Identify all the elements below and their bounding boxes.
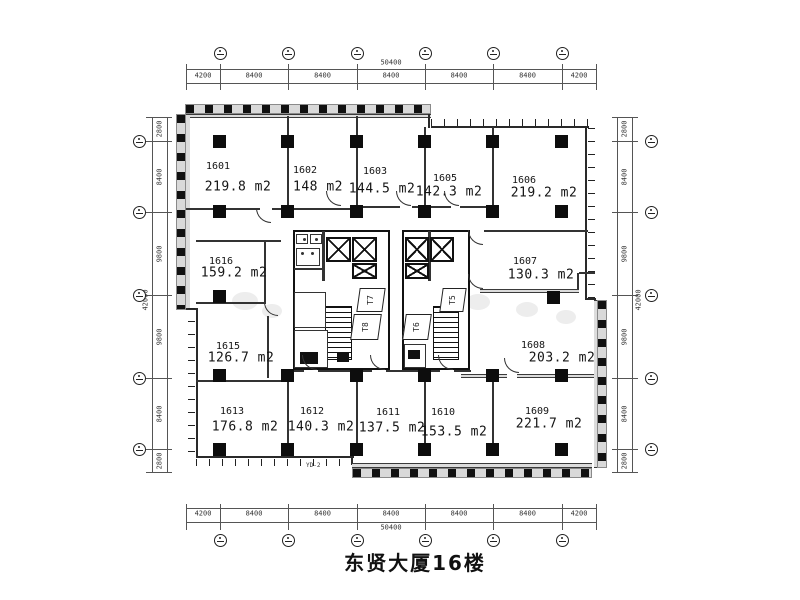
duct-shaft-label: T5	[449, 295, 457, 305]
dim-tick	[146, 378, 172, 379]
column	[213, 205, 226, 218]
grid-bubble	[556, 534, 569, 547]
partition-wall	[196, 240, 281, 242]
west-window-ticks	[188, 308, 195, 456]
dim-label: 4200	[571, 511, 588, 518]
column	[555, 205, 568, 218]
fixture-dot	[311, 252, 314, 255]
restroom-fixture	[296, 234, 308, 244]
dim-tick	[612, 449, 638, 450]
dim-label: 4200	[571, 73, 588, 80]
column	[350, 205, 363, 218]
east-facade-mullions	[597, 300, 607, 468]
room-1607-number: 1607	[513, 257, 537, 267]
room-1613-number: 1613	[220, 407, 244, 417]
room-1610-area: 153.5 m2	[421, 426, 488, 439]
dim-label: 8400	[246, 511, 263, 518]
column	[555, 369, 568, 382]
watermark-blob	[232, 292, 258, 310]
grid-bubble	[214, 47, 227, 60]
dim-label: 4200	[195, 73, 212, 80]
grid-bubble	[487, 534, 500, 547]
room-1601-area: 219.8 m2	[205, 181, 272, 194]
south-wall	[196, 456, 354, 458]
column	[213, 443, 226, 456]
drawing-title: 东贤大厦16楼	[344, 547, 486, 576]
room-1605-number: 1605	[433, 174, 457, 184]
stair-east	[433, 306, 459, 360]
door-arc	[504, 358, 519, 373]
dim-label: 8400	[157, 168, 164, 185]
core-wall	[322, 231, 325, 281]
dim-label: 8400	[157, 405, 164, 422]
room-1602-area: 148 m2	[293, 181, 343, 194]
column	[486, 443, 499, 456]
partition-wall	[357, 206, 400, 208]
room-1609-number: 1609	[525, 407, 549, 417]
elevator-shaft	[430, 237, 454, 262]
column	[418, 135, 431, 148]
dim-label: 2800	[157, 121, 164, 138]
dim-label: 8400	[314, 511, 331, 518]
duct-shaft-label: T6	[413, 322, 421, 332]
dim-label: 8400	[519, 73, 536, 80]
elevator-shaft	[405, 237, 429, 262]
north-window-ticks	[431, 119, 589, 126]
room-1606-number: 1606	[512, 176, 536, 186]
room-1601-number: 1601	[206, 162, 230, 172]
column	[281, 135, 294, 148]
dim-total: 50400	[380, 525, 401, 532]
dim-tick	[146, 212, 172, 213]
column	[486, 135, 499, 148]
partition-wall	[386, 370, 440, 372]
column	[281, 205, 294, 218]
west-wall	[186, 114, 190, 310]
partition-wall	[480, 289, 579, 293]
column	[486, 205, 499, 218]
dim-label: 8400	[622, 168, 629, 185]
grid-bubble	[645, 206, 658, 219]
dim-tick	[220, 64, 221, 90]
column	[213, 290, 226, 303]
grid-bubble	[645, 443, 658, 456]
dim-tick	[493, 504, 494, 530]
dim-label: 8400	[246, 73, 263, 80]
core-wall	[294, 268, 322, 270]
dim-label: 8400	[451, 511, 468, 518]
partition-wall	[484, 230, 588, 232]
equipment-badge	[408, 350, 420, 359]
dim-tick	[425, 64, 426, 90]
grid-bubble	[487, 47, 500, 60]
grid-bubble	[133, 443, 146, 456]
column	[418, 205, 431, 218]
dim-label: 9800	[622, 245, 629, 262]
room-1612-number: 1612	[300, 407, 324, 417]
column	[555, 135, 568, 148]
column	[555, 443, 568, 456]
partition-wall	[196, 302, 266, 304]
column	[547, 291, 560, 304]
dim-tick	[146, 117, 172, 118]
room-1603-area: 144.5 m2	[349, 183, 416, 196]
grid-bubble	[133, 372, 146, 385]
room-1606-area: 219.2 m2	[511, 187, 578, 200]
east-window-ticks	[588, 128, 595, 300]
room-1608-area: 203.2 m2	[529, 352, 596, 365]
wall-type-label: YD-2	[306, 463, 320, 469]
dim-tick	[146, 295, 172, 296]
dim-label: 9800	[157, 245, 164, 262]
south-facade-mullions	[352, 468, 592, 478]
room-1616-area: 159.2 m2	[201, 267, 268, 280]
grid-bubble	[556, 47, 569, 60]
dim-tick	[357, 64, 358, 90]
room-1611-number: 1611	[376, 408, 400, 418]
room-1613-area: 176.8 m2	[212, 421, 279, 434]
dim-label: 8400	[383, 511, 400, 518]
dim-label: 8400	[383, 73, 400, 80]
east-wall	[585, 128, 587, 300]
dim-tick	[493, 64, 494, 90]
grid-bubble	[133, 206, 146, 219]
column	[281, 369, 294, 382]
elevator-shaft	[326, 237, 351, 262]
partition-wall	[318, 370, 372, 372]
north-facade-mullions	[185, 104, 431, 114]
grid-bubble	[133, 135, 146, 148]
dim-label: 8400	[451, 73, 468, 80]
watermark-blob	[556, 310, 576, 324]
equipment-badge	[337, 352, 349, 362]
dim-label: 8400	[622, 405, 629, 422]
column	[350, 443, 363, 456]
dim-tick	[186, 64, 187, 90]
dim-tick	[612, 472, 638, 473]
grid-bubble	[645, 372, 658, 385]
room-1609-area: 221.7 m2	[516, 418, 583, 431]
dim-label: 9800	[157, 328, 164, 345]
column	[418, 369, 431, 382]
partition-wall	[267, 316, 269, 378]
floorplan-canvas: T7T8T5T61601219.8 m21602148 m21603144.5 …	[0, 0, 800, 600]
west-facade-mullions	[176, 114, 186, 310]
fixture-dot	[303, 238, 306, 241]
door-arc	[468, 230, 483, 245]
grid-bubble	[645, 135, 658, 148]
fixture-dot	[315, 238, 318, 241]
column	[213, 369, 226, 382]
restroom-fixture	[296, 248, 320, 266]
partition-wall	[579, 272, 595, 274]
dim-tick	[288, 504, 289, 530]
room-1608-number: 1608	[521, 341, 545, 351]
column	[213, 135, 226, 148]
column	[281, 443, 294, 456]
dim-tick	[562, 64, 563, 90]
room-1605-area: 142.3 m2	[416, 186, 483, 199]
dim-tick	[146, 449, 172, 450]
dim-label: 4200	[195, 511, 212, 518]
dim-tick	[146, 141, 172, 142]
dim-tick	[146, 472, 172, 473]
dim-label: 8400	[519, 511, 536, 518]
room-1607-area: 130.3 m2	[508, 269, 575, 282]
dim-tick	[612, 212, 638, 213]
watermark-blob	[516, 302, 538, 317]
room-1611-area: 137.5 m2	[359, 422, 426, 435]
column	[418, 443, 431, 456]
dim-tick	[357, 504, 358, 530]
dim-tick	[220, 504, 221, 530]
dim-tick	[288, 64, 289, 90]
elevator-shaft	[405, 263, 429, 279]
room-1603-number: 1603	[363, 167, 387, 177]
south-window-ticks	[196, 459, 354, 466]
grid-bubble	[133, 289, 146, 302]
room-1602-number: 1602	[293, 166, 317, 176]
dim-label: 9800	[622, 328, 629, 345]
grid-bubble	[214, 534, 227, 547]
dim-tick	[612, 117, 638, 118]
room-1610-number: 1610	[431, 408, 455, 418]
dim-label: 2800	[622, 121, 629, 138]
partition-wall	[454, 370, 471, 372]
column	[350, 135, 363, 148]
dim-tick	[425, 504, 426, 530]
door-arc	[256, 208, 271, 223]
duct-shaft-label: T7	[367, 295, 375, 305]
grid-bubble	[282, 47, 295, 60]
grid-bubble	[351, 534, 364, 547]
restroom-fixture	[294, 292, 326, 328]
door-arc	[468, 274, 483, 289]
fixture-dot	[301, 252, 304, 255]
dim-total: 42000	[636, 289, 643, 310]
partition-wall	[196, 380, 288, 382]
dim-tick	[596, 504, 597, 530]
elevator-shaft	[352, 237, 377, 262]
north-wall-jog	[428, 114, 430, 128]
grid-bubble	[419, 47, 432, 60]
partition-wall	[461, 374, 507, 378]
column	[350, 369, 363, 382]
west-wall	[196, 308, 198, 456]
dim-label: 8400	[314, 73, 331, 80]
dim-tick	[612, 141, 638, 142]
elevator-shaft	[352, 263, 377, 279]
grid-bubble	[282, 534, 295, 547]
dim-tick	[596, 64, 597, 90]
dim-line	[186, 83, 596, 84]
dim-tick	[562, 504, 563, 530]
dim-label: 2800	[157, 452, 164, 469]
dim-label: 2800	[622, 452, 629, 469]
north-wall	[185, 114, 431, 118]
grid-bubble	[419, 534, 432, 547]
room-1612-area: 140.3 m2	[288, 421, 355, 434]
grid-bubble	[645, 289, 658, 302]
room-1615-area: 126.7 m2	[208, 352, 275, 365]
dim-tick	[186, 504, 187, 530]
dim-tick	[612, 378, 638, 379]
grid-bubble	[351, 47, 364, 60]
partition-wall	[287, 116, 289, 209]
dim-line	[186, 69, 596, 70]
dim-total: 50400	[380, 60, 401, 67]
north-wall	[431, 126, 589, 128]
duct-shaft-label: T8	[362, 322, 370, 332]
column	[486, 369, 499, 382]
